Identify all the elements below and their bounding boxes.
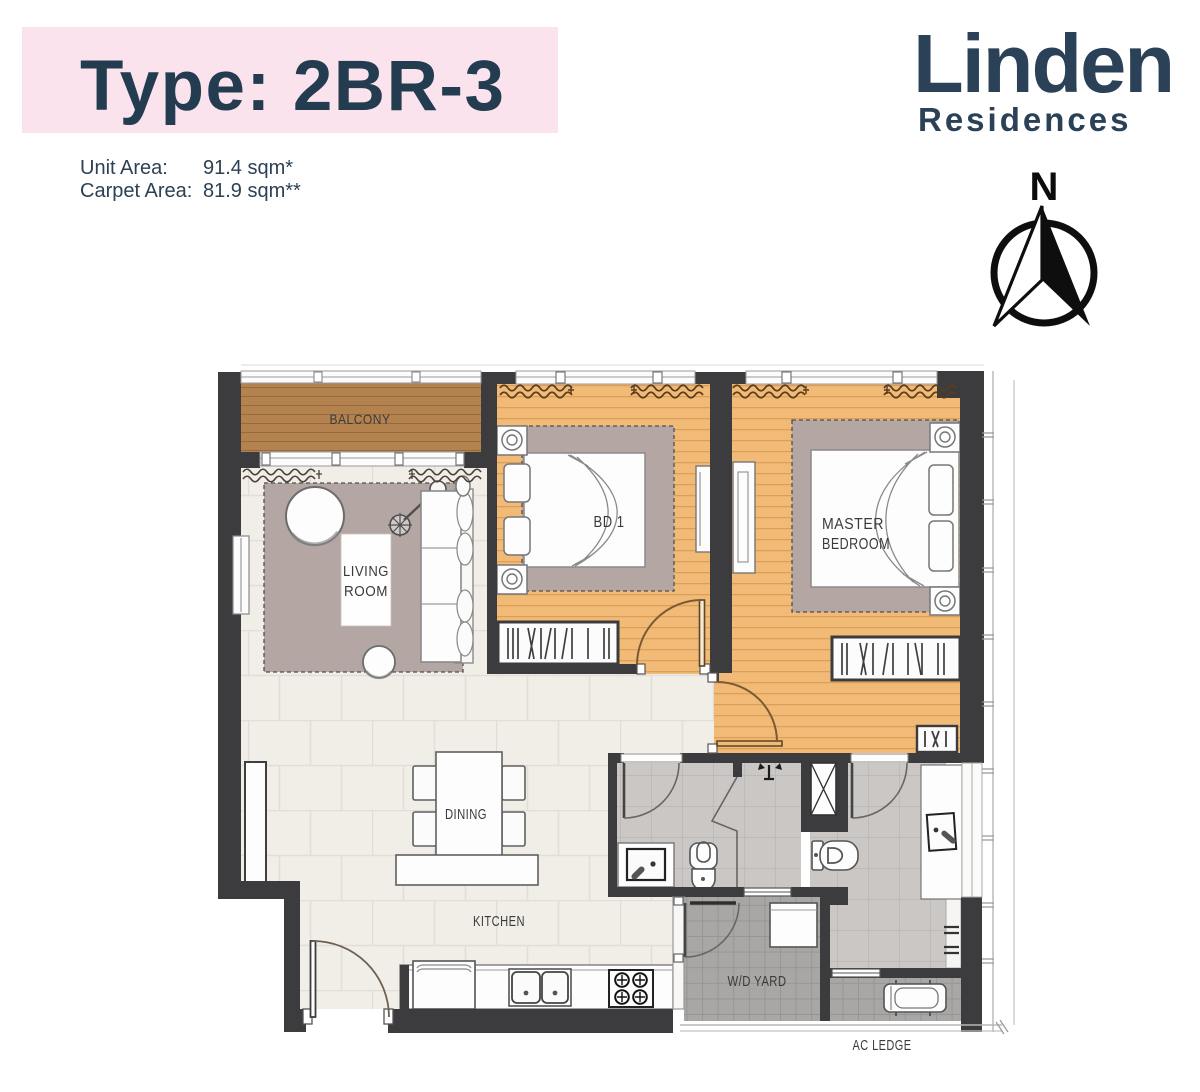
svg-text:Unit Area:: Unit Area:: [80, 157, 168, 179]
svg-text:BALCONY: BALCONY: [330, 411, 391, 427]
svg-text:LIVING: LIVING: [343, 563, 389, 580]
svg-text:91.4 sqm*: 91.4 sqm*: [203, 157, 293, 179]
svg-text:W/D YARD: W/D YARD: [728, 973, 787, 990]
svg-text:81.9 sqm**: 81.9 sqm**: [203, 180, 301, 202]
svg-text:Type: 2BR-3: Type: 2BR-3: [80, 47, 505, 126]
svg-text:DINING: DINING: [445, 806, 487, 823]
svg-text:KITCHEN: KITCHEN: [473, 913, 525, 930]
svg-text:BD 1: BD 1: [594, 514, 625, 531]
svg-text:MASTER: MASTER: [822, 516, 884, 533]
svg-text:BEDROOM: BEDROOM: [822, 536, 890, 553]
svg-text:ROOM: ROOM: [344, 583, 388, 600]
svg-text:AC LEDGE: AC LEDGE: [853, 1037, 912, 1054]
svg-text:Carpet Area:: Carpet Area:: [80, 180, 192, 202]
svg-text:Residences: Residences: [918, 101, 1131, 138]
svg-text:Linden: Linden: [913, 17, 1173, 110]
svg-text:N: N: [1030, 165, 1059, 209]
